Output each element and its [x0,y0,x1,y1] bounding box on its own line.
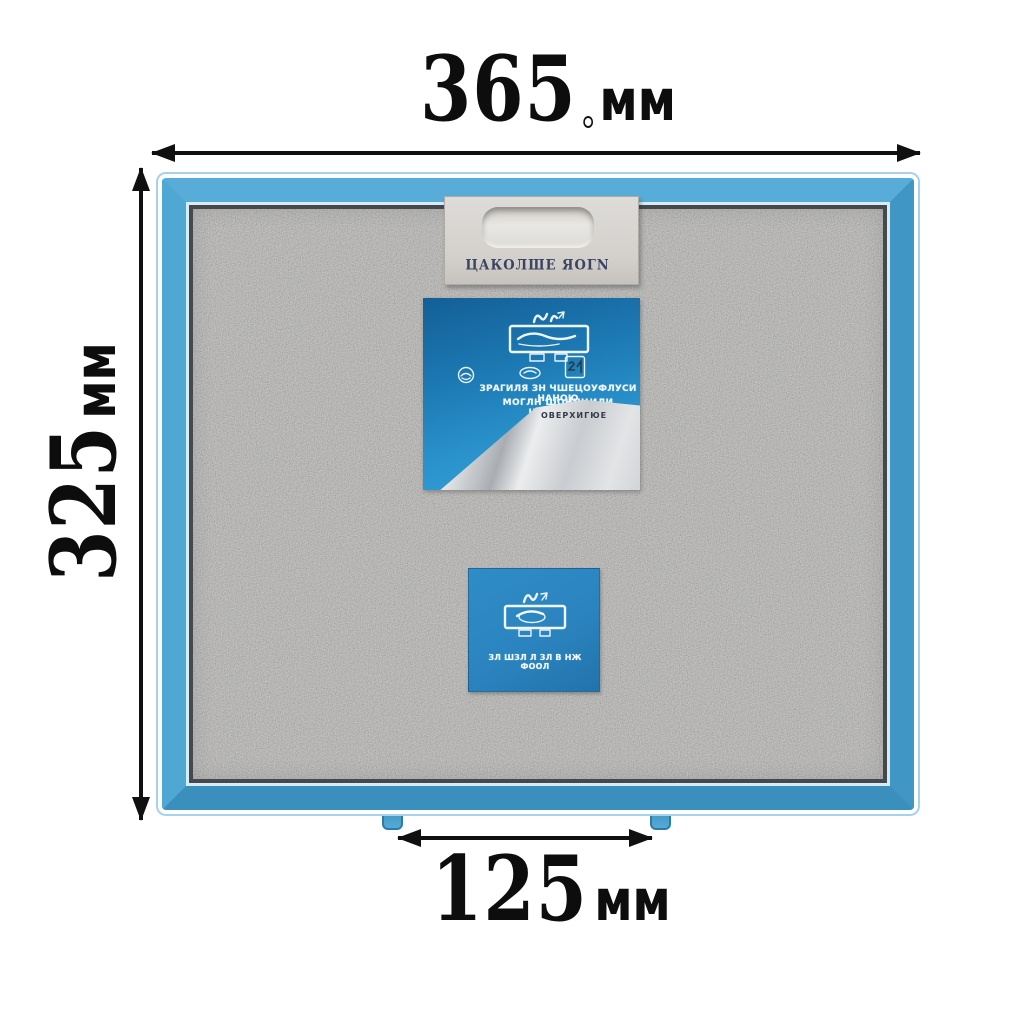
handle-grip-recess [482,207,594,248]
arrow-right-head-icon [897,144,921,162]
mounting-tab-right [650,810,671,830]
height-value: 325 [39,425,129,582]
product-dimension-diagram: 365 мм 325 мм ЦАКОЛШЕ ЯО [0,0,1024,1024]
arrow-down-head-icon [132,797,150,821]
tab-spacing-value: 125 [431,844,588,934]
handle-plate: ЦАКОЛШЕ ЯОГN [444,196,639,285]
hood-steam-icon [502,587,568,643]
handle-embossed-text: ЦАКОЛШЕ ЯОГN [445,257,630,273]
peel-underside-text: ОВЕРХИГЮЕ [541,411,607,420]
arrow-up-head-icon [132,167,150,191]
height-dimension-arrow [139,168,143,820]
arrow-left-head-icon [397,829,421,847]
tab-spacing-dimension-arrow [398,836,652,840]
mounting-tab-left [382,810,403,830]
tab-spacing-dimension-label: 125 мм [431,844,670,934]
mesh-texture [186,202,890,786]
round-stamp-icon [456,366,476,384]
oval-mark-icon [518,366,542,380]
width-value: 365 [420,44,577,134]
arrow-right-head-icon [629,829,653,847]
width-dimension-arrow [152,151,920,155]
registered-mark-icon [583,116,593,128]
width-dimension-label: 365 мм [420,44,676,134]
tab-spacing-unit: мм [594,873,670,930]
height-unit: мм [68,342,125,418]
info-sticker-small: ЗЛ ШЗЛ Л ЗЛ В НЖ ФООЛ [468,568,600,692]
square-badge-icon [564,355,586,379]
height-dimension-label: 325 мм [39,342,129,581]
arrow-left-head-icon [151,144,175,162]
sticker-text-line1: ЗЛ ШЗЛ Л ЗЛ В НЖ ФООЛ [475,653,595,671]
info-sticker-large: ЗРАГИЛЯ ЗН ЧШЕЦОУФЛУСИ НАНОЮ МОГЛН ШОННЦ… [423,298,640,490]
width-unit: мм [600,73,676,130]
